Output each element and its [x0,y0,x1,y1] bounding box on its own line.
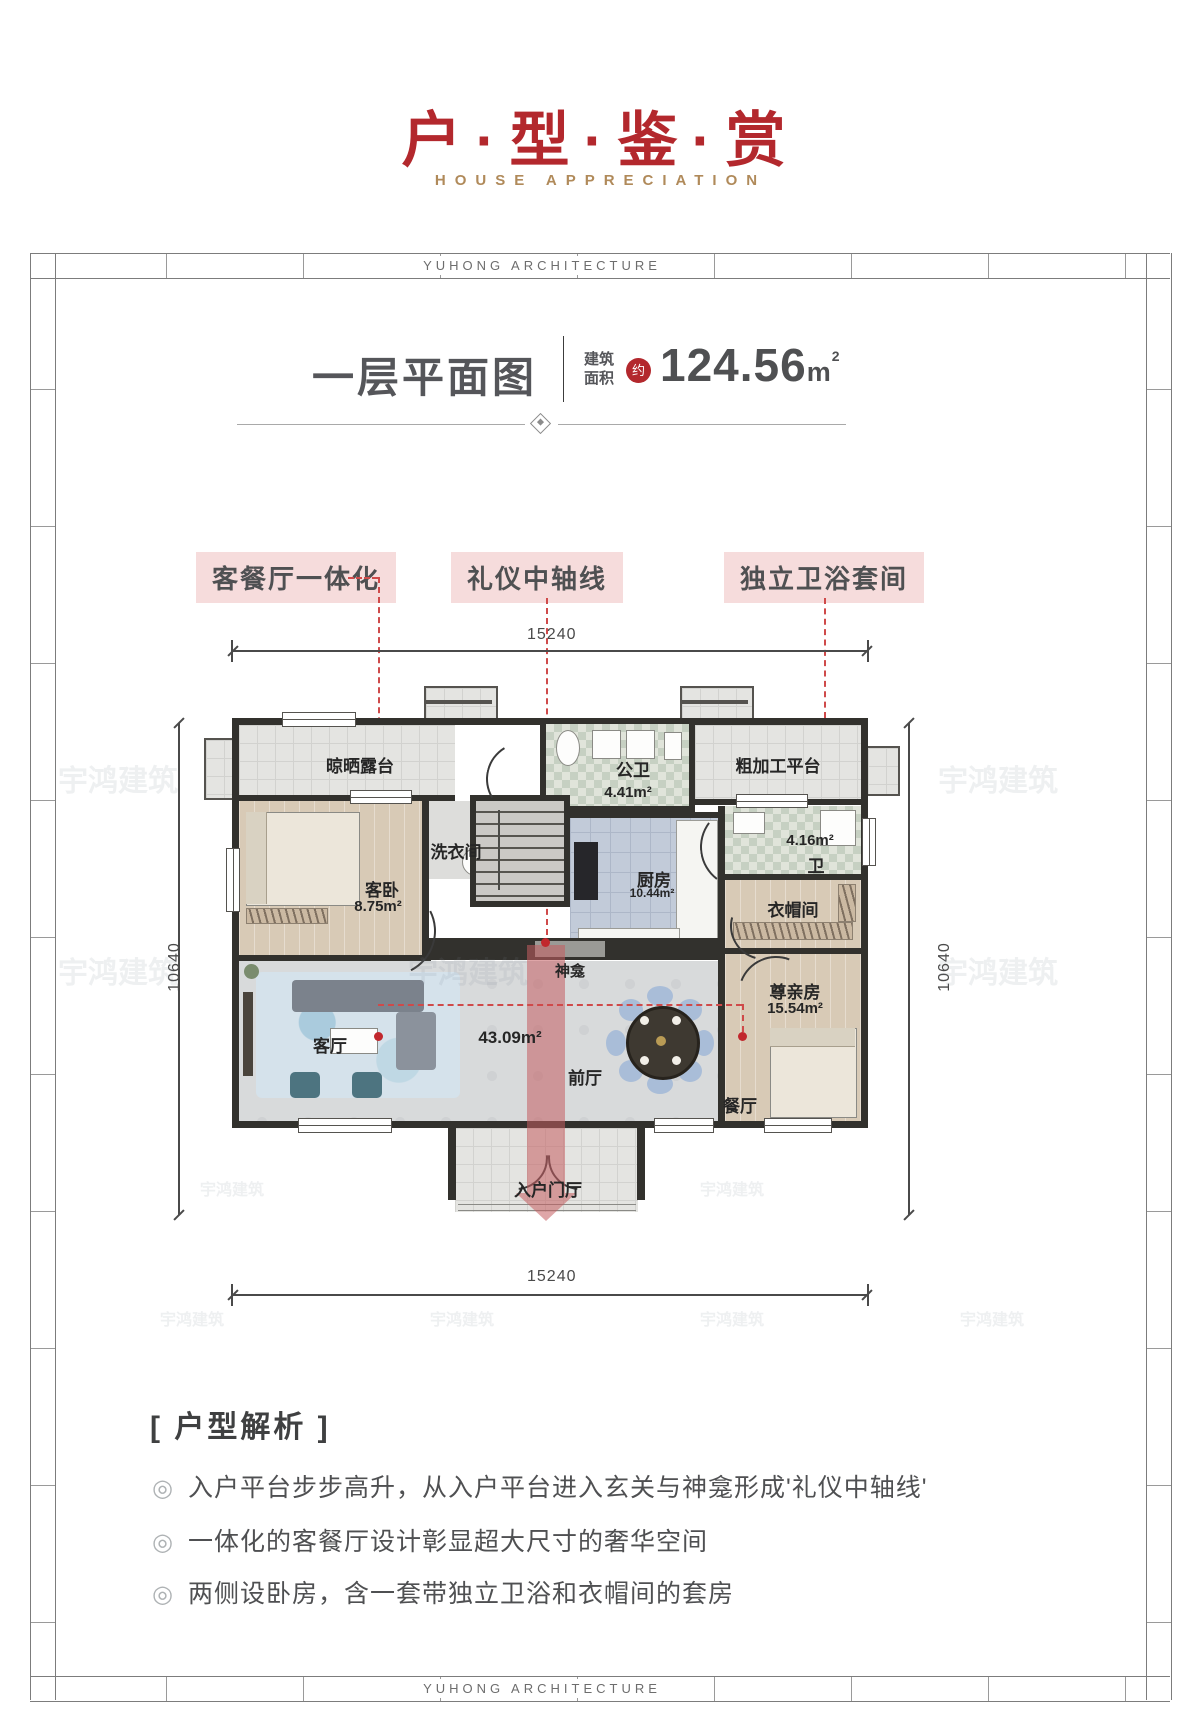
zone-dash-top [378,1004,742,1006]
plate [640,1056,649,1065]
watermark: 宇鸿建筑 [700,1306,764,1330]
sink-icon [592,730,621,759]
dim-bottom-line [232,1294,868,1296]
label-dining: 餐厅 [723,1092,757,1117]
zone-dash-right [742,1004,744,1032]
flyer-page: 户·型·鉴·赏 HOUSE APPRECIATION YUHONG ARCHIT… [0,0,1201,1735]
dining-table [614,994,706,1086]
dresser-icon [246,908,328,924]
watermark: 宇鸿建筑 [938,948,1058,992]
divider-knot-icon [530,413,551,434]
analysis-text-3: 两侧设卧房，含一套带独立卫浴和衣帽间的套房 [188,1580,734,1608]
callout-suite: 独立卫浴套间 [724,552,924,603]
dim-bottom-label: 15240 [527,1268,577,1286]
analysis-text-2: 一体化的客餐厅设计彰显超大尺寸的奢华空间 [188,1528,708,1556]
leader-suite-v [824,598,826,718]
area-value: 124.56m2 [660,338,841,392]
window [226,848,240,912]
watermark: 宇鸿建筑 [58,756,178,800]
window [654,1118,714,1133]
axis-band [527,945,565,1193]
label-laundry: 洗衣间 [431,838,482,863]
header-divider [563,336,564,402]
label-shrine: 神龛 [555,960,585,981]
window [736,794,808,808]
armchair-icon [352,1072,382,1098]
area-caption-line1: 建筑 [584,350,614,369]
dim-right-line [908,723,910,1215]
window [862,818,876,866]
frame-brand-top: YUHONG ARCHITECTURE [407,256,677,275]
wall [448,1128,456,1200]
tv-cabinet-icon [243,992,253,1076]
frame-brand-bottom: YUHONG ARCHITECTURE [407,1679,677,1698]
area-number: 124.56 [660,339,807,391]
sofa-icon [292,980,424,1012]
wall [570,812,720,818]
plate [672,1056,681,1065]
label-hall: 前厅 [568,1064,602,1089]
table-center [656,1036,666,1046]
area-caption: 建筑 面积 [584,350,614,388]
label-public-bath: 公卫 [616,756,650,781]
label-entry: 入户门厅 [514,1176,582,1201]
analysis-text-1: 入户平台步步高升，从入户平台进入玄关与神龛形成'礼仪中轴线' [188,1474,928,1502]
chimney-right-stripe [682,700,748,704]
analysis-item: ◎两侧设卧房，含一套带独立卫浴和衣帽间的套房 [152,1574,734,1610]
label-guest-bed-area: 8.75m² [354,898,402,915]
window [764,1118,832,1133]
page-title: 户·型·鉴·赏 [0,92,1201,179]
plant-icon [244,964,259,979]
analysis-heading: [ 户型解析 ] [150,1402,331,1446]
leader-living-h [348,577,378,579]
bullet-icon: ◎ [152,1581,174,1608]
watermark: 宇鸿建筑 [200,1176,264,1200]
watermark: 宇鸿建筑 [960,1306,1024,1330]
plate [672,1016,681,1025]
label-living: 客厅 [313,1032,347,1057]
approx-badge: 约 [626,358,651,383]
wardrobe-icon [838,884,856,922]
dim-cap [231,640,233,662]
dim-cap [867,640,869,662]
balcony-bump-right [866,746,900,796]
label-cloakroom: 衣帽间 [768,896,819,921]
watermark: 宇鸿建筑 [408,948,528,992]
area-superscript: 2 [832,348,841,364]
washbasin-icon [664,732,682,760]
watermark: 宇鸿建筑 [58,948,178,992]
analysis-item: ◎入户平台步步高升，从入户平台进入玄关与神龛形成'礼仪中轴线' [152,1468,928,1504]
window [298,1118,392,1133]
label-suite-bath-area: 4.16m² [786,832,834,849]
label-kitchen-area: 10.44m² [630,886,675,900]
window [350,790,412,804]
divider-line-right [558,424,846,425]
chimney-left-stripe [426,700,492,704]
watermark: 宇鸿建筑 [938,756,1058,800]
label-elder-area: 15.54m² [767,1000,823,1017]
sink-icon [626,730,655,759]
label-suite-bath: 卫 [808,852,825,877]
dining-chair [606,1030,626,1056]
watermark: 宇鸿建筑 [700,1176,764,1200]
callout-axis: 礼仪中轴线 [451,552,623,603]
armchair-icon [290,1072,320,1098]
area-unit: m [807,357,832,387]
chaise-icon [396,1012,436,1070]
toilet-icon [556,730,580,766]
dim-cap [231,1284,233,1306]
frame-right-band [1146,253,1172,1700]
bullet-icon: ◎ [152,1529,174,1556]
zone-dot-left [374,1032,383,1041]
label-hall-area: 43.09m² [478,1028,541,1048]
frame-left-band [30,253,56,1700]
label-platform: 粗加工平台 [736,752,821,777]
wall [637,1128,645,1200]
plan-title: 一层平面图 [312,344,537,405]
label-terrace: 晾晒露台 [326,752,394,777]
analysis-item: ◎一体化的客餐厅设计彰显超大尺寸的奢华空间 [152,1522,708,1558]
axis-dot [541,938,550,947]
plate [640,1016,649,1025]
page-subtitle: HOUSE APPRECIATION [0,172,1201,189]
watermark: 宇鸿建筑 [160,1306,224,1330]
stair-rail [498,810,500,890]
zone-dot-right [738,1032,747,1041]
window [282,712,356,727]
bullet-icon: ◎ [152,1475,174,1502]
cooktop-icon [574,842,598,900]
divider-line-left [237,424,525,425]
bed-pillow [246,812,267,904]
area-caption-line2: 面积 [584,369,614,388]
dim-top-label: 15240 [527,626,577,644]
label-public-bath-area: 4.41m² [604,784,652,801]
dining-chair [647,986,673,1006]
dim-cap [867,1284,869,1306]
watermark: 宇鸿建筑 [430,1306,494,1330]
dim-top-line [232,650,868,652]
